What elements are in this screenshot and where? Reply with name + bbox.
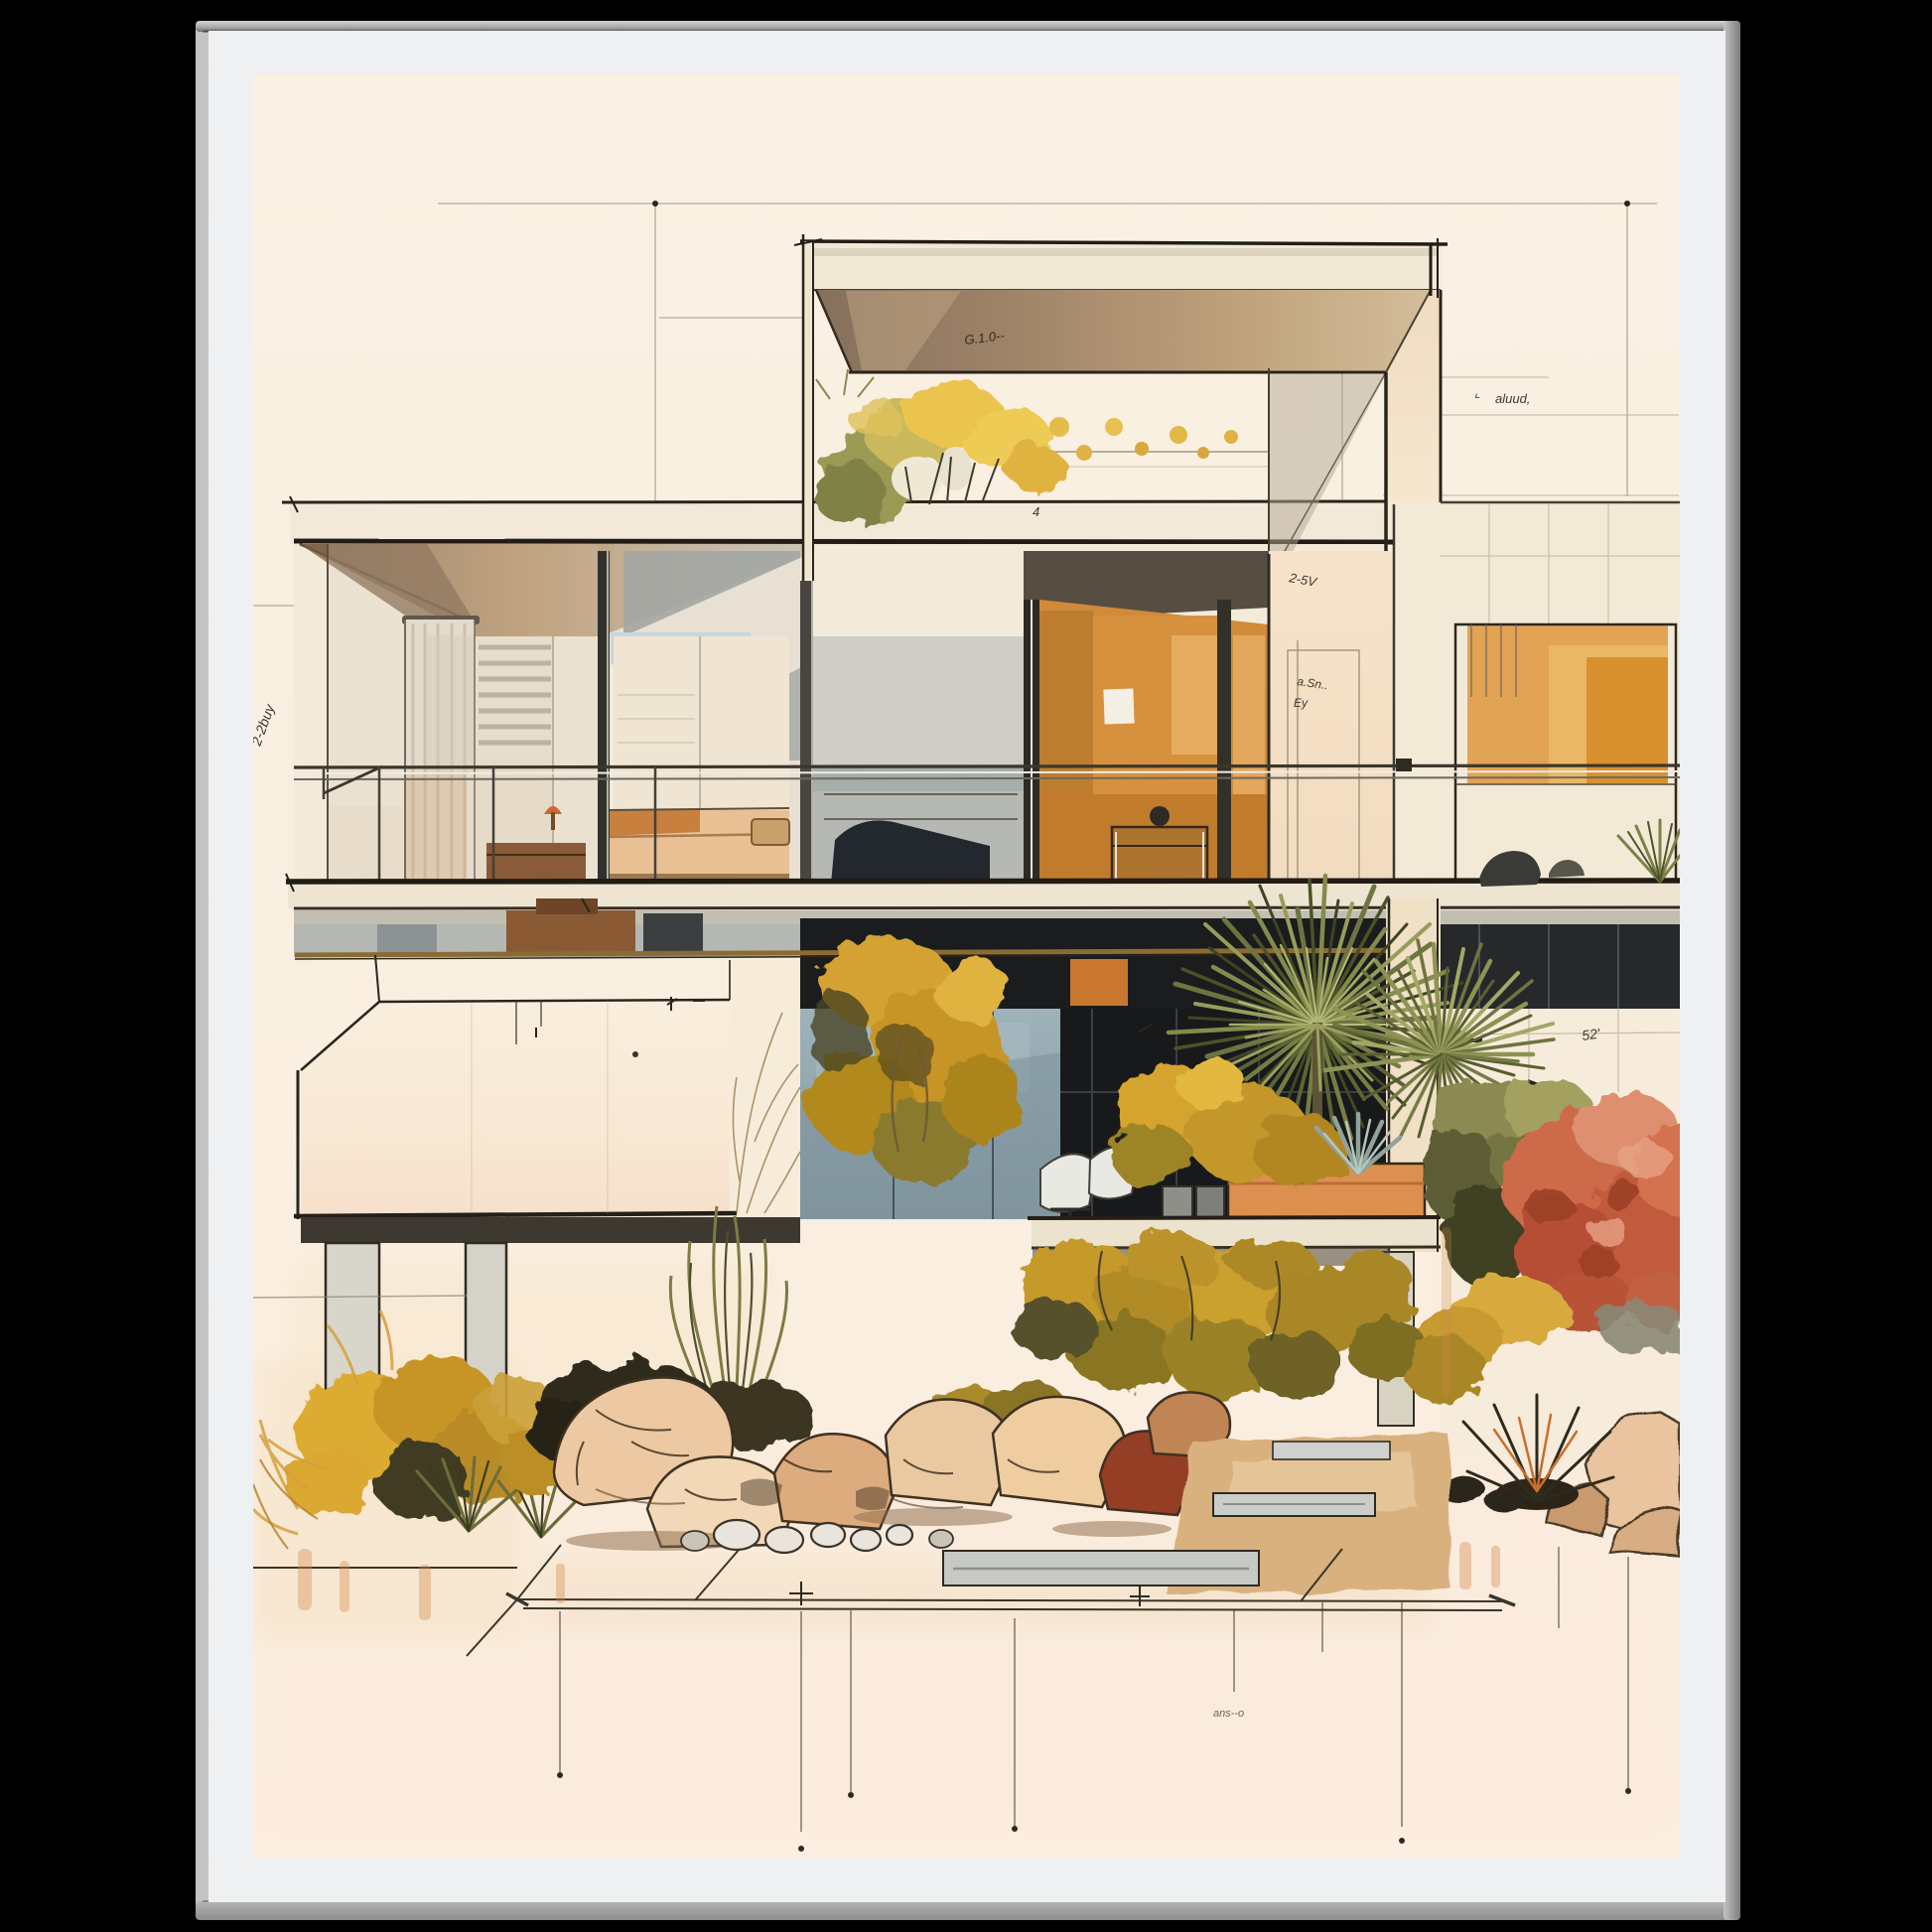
svg-text:Ey: Ey	[1294, 696, 1309, 710]
svg-text:4: 4	[1033, 504, 1039, 519]
svg-text:aluud,: aluud,	[1495, 391, 1530, 406]
svg-text:⌞: ⌞	[1474, 385, 1480, 400]
svg-text:52': 52'	[1581, 1025, 1602, 1043]
svg-text:ans--o: ans--o	[1213, 1708, 1244, 1720]
